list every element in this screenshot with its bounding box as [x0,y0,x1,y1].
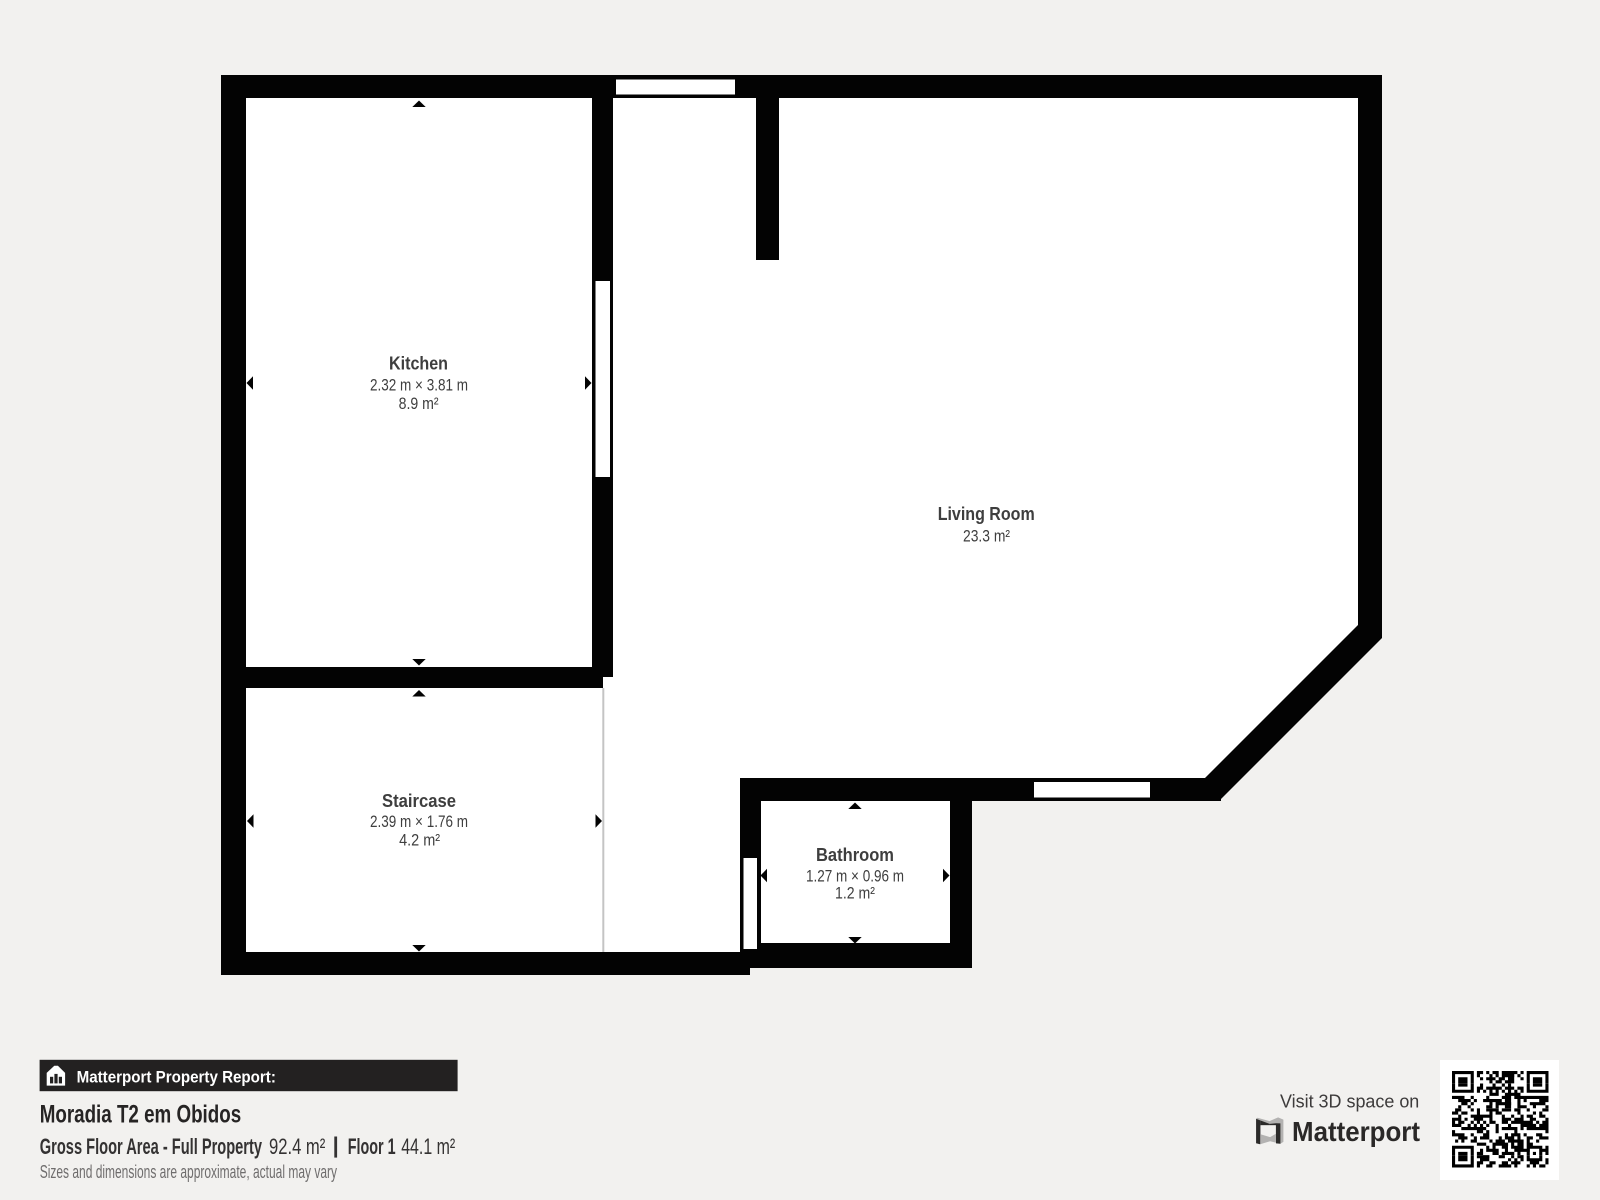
svg-text:Floor 1: Floor 1 [348,1134,396,1159]
svg-text:Kitchen: Kitchen [389,353,448,373]
svg-text:23.3 m²: 23.3 m² [963,526,1010,545]
svg-text:Sizes and dimensions are appro: Sizes and dimensions are approximate, ac… [40,1162,337,1182]
svg-text:8.9 m²: 8.9 m² [399,394,439,413]
svg-text:44.1 m²: 44.1 m² [401,1134,455,1159]
svg-text:4.2 m²: 4.2 m² [399,831,440,850]
svg-text:92.4 m²: 92.4 m² [269,1134,326,1159]
svg-text:2.32 m × 3.81 m: 2.32 m × 3.81 m [370,376,468,395]
svg-text:Bathroom: Bathroom [816,845,894,865]
svg-text:Staircase: Staircase [382,791,456,811]
svg-text:Matterport Property Report:: Matterport Property Report: [77,1068,276,1087]
svg-text:Gross Floor Area - Full Proper: Gross Floor Area - Full Property [40,1134,263,1159]
svg-text:Moradia T2 em Obidos: Moradia T2 em Obidos [40,1101,242,1129]
svg-text:2.39 m × 1.76 m: 2.39 m × 1.76 m [370,812,468,831]
svg-text:1.2 m²: 1.2 m² [835,884,875,903]
svg-text:Visit 3D space on: Visit 3D space on [1280,1092,1419,1113]
svg-text:Living Room: Living Room [938,504,1035,524]
svg-text:Matterport: Matterport [1292,1116,1420,1147]
